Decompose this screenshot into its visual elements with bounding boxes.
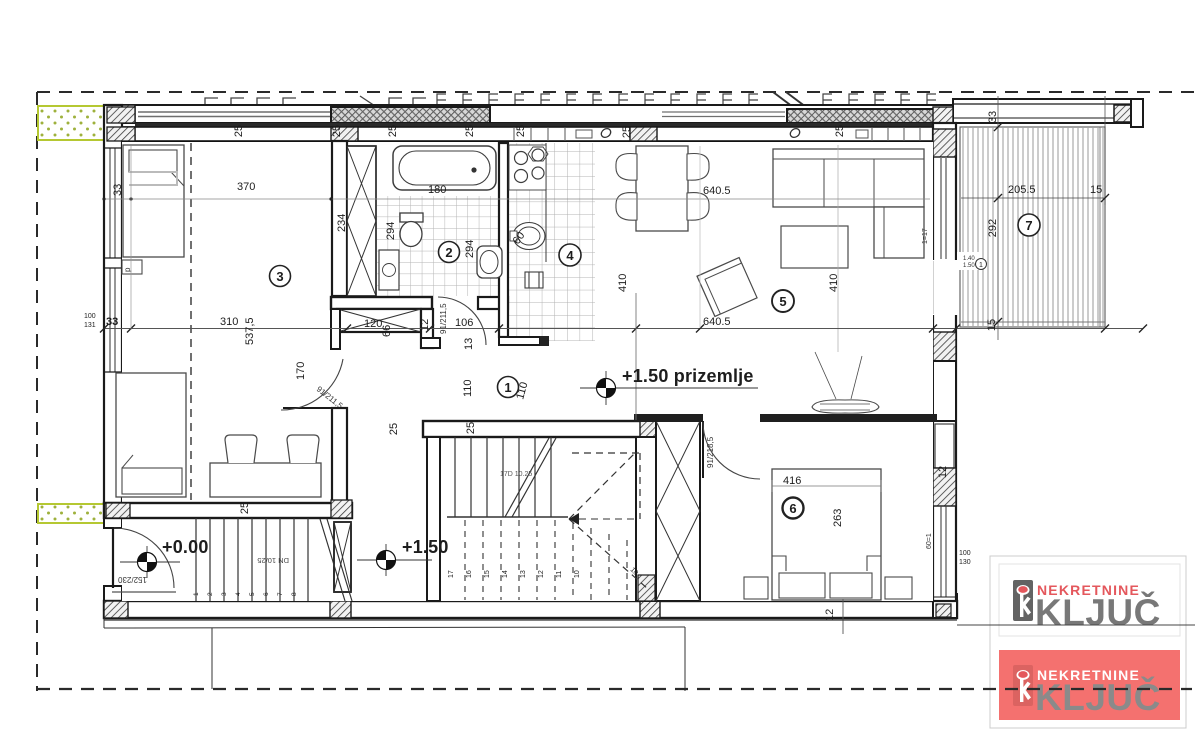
svg-text:537,5: 537,5	[244, 317, 256, 345]
svg-text:4: 4	[566, 248, 574, 263]
svg-text:205.5: 205.5	[1008, 184, 1036, 196]
svg-text:12: 12	[824, 609, 836, 621]
svg-text:4: 4	[235, 592, 242, 596]
svg-text:370: 370	[237, 181, 255, 193]
svg-text:263: 263	[832, 509, 844, 527]
svg-text:15: 15	[986, 319, 998, 331]
svg-text:8: 8	[291, 592, 298, 596]
svg-text:120: 120	[364, 318, 382, 330]
svg-text:15: 15	[1090, 184, 1102, 196]
svg-text:25: 25	[331, 125, 343, 137]
svg-text:106: 106	[455, 317, 473, 329]
svg-text:152/230: 152/230	[118, 575, 147, 584]
svg-text:DN 10/25: DN 10/25	[257, 556, 289, 565]
svg-text:25: 25	[233, 125, 245, 137]
svg-text:+1.50: +1.50	[402, 537, 449, 557]
svg-text:+1.50 prizemlje: +1.50 prizemlje	[622, 366, 754, 386]
svg-text:3: 3	[221, 592, 228, 596]
svg-text:25: 25	[834, 125, 846, 137]
svg-text:33: 33	[106, 316, 118, 328]
svg-text:14: 14	[502, 570, 509, 578]
svg-text:13: 13	[463, 338, 475, 350]
svg-text:12: 12	[937, 466, 949, 478]
svg-text:25: 25	[388, 423, 400, 435]
svg-text:294: 294	[385, 222, 397, 240]
svg-text:60=1: 60=1	[926, 533, 933, 549]
svg-text:180: 180	[428, 184, 446, 196]
svg-text:640.5: 640.5	[703, 185, 731, 197]
svg-text:7: 7	[277, 592, 284, 596]
svg-text:640.5: 640.5	[703, 316, 731, 328]
svg-text:1.40: 1.40	[963, 256, 975, 262]
svg-text:25: 25	[515, 125, 527, 137]
svg-text:7: 7	[1025, 218, 1032, 233]
svg-text:2: 2	[207, 592, 214, 596]
svg-text:25: 25	[387, 125, 399, 137]
svg-text:KLJUČ: KLJUČ	[1035, 591, 1161, 633]
svg-text:310: 310	[220, 316, 238, 328]
svg-text:292: 292	[987, 219, 999, 237]
svg-text:5: 5	[779, 294, 786, 309]
svg-text:1.50: 1.50	[963, 263, 975, 269]
svg-text:1: 1	[979, 262, 983, 269]
svg-text:91/211,5: 91/211,5	[439, 303, 448, 334]
svg-text:410: 410	[828, 274, 840, 292]
svg-text:66: 66	[381, 325, 393, 337]
svg-text:17: 17	[448, 570, 455, 578]
svg-text:410: 410	[617, 274, 629, 292]
svg-text:16: 16	[466, 570, 473, 578]
svg-text:15: 15	[484, 570, 491, 578]
svg-text:6: 6	[789, 501, 796, 516]
svg-text:KLJUČ: KLJUČ	[1035, 676, 1161, 718]
svg-text:25: 25	[464, 125, 476, 137]
svg-text:33: 33	[987, 111, 999, 123]
svg-text:1=17: 1=17	[922, 228, 929, 244]
svg-text:2: 2	[445, 245, 452, 260]
svg-text:3: 3	[276, 269, 283, 284]
svg-text:130: 130	[959, 559, 971, 566]
svg-text:1: 1	[504, 380, 511, 395]
svg-text:234: 234	[336, 214, 348, 232]
svg-text:13: 13	[520, 570, 527, 578]
svg-text:25: 25	[239, 502, 251, 514]
svg-text:416: 416	[783, 475, 801, 487]
svg-text:12: 12	[419, 319, 431, 331]
svg-text:294: 294	[464, 240, 476, 258]
svg-text:+0.00: +0.00	[162, 537, 209, 557]
svg-text:110: 110	[462, 379, 474, 397]
svg-text:5: 5	[249, 592, 256, 596]
svg-text:10: 10	[574, 570, 581, 578]
svg-text:100: 100	[84, 313, 96, 320]
svg-text:91/218,5: 91/218,5	[706, 436, 715, 468]
svg-text:12: 12	[538, 570, 545, 578]
svg-text:11: 11	[556, 571, 563, 578]
svg-text:17D 10.25: 17D 10.25	[500, 471, 532, 478]
svg-text:170: 170	[295, 362, 307, 380]
svg-text:25: 25	[621, 126, 633, 138]
svg-text:33: 33	[112, 184, 124, 196]
svg-text:131: 131	[84, 322, 96, 329]
svg-text:1: 1	[193, 592, 200, 596]
svg-text:6: 6	[263, 592, 270, 596]
svg-text:25: 25	[465, 422, 477, 434]
svg-text:100: 100	[959, 550, 971, 557]
